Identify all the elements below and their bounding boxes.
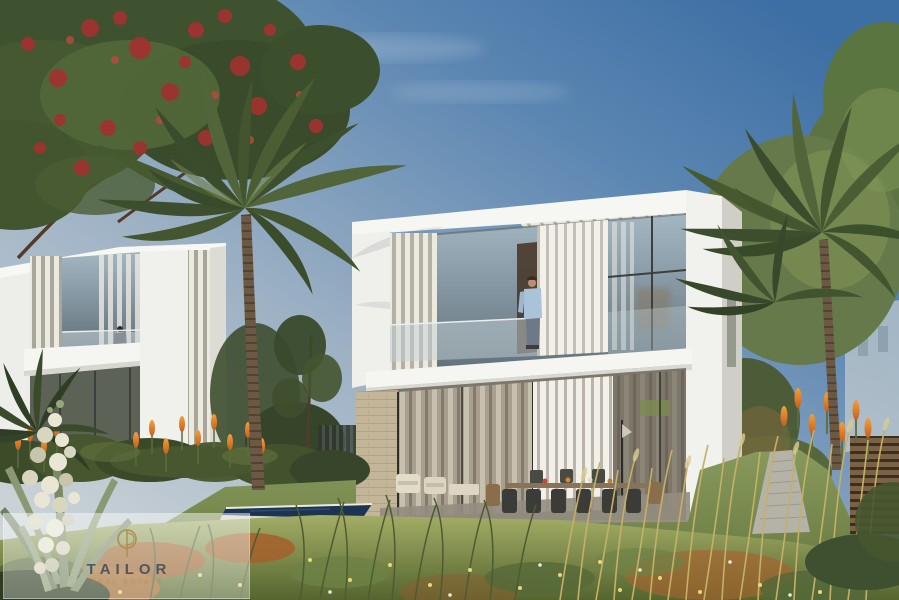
scene-canvas	[0, 0, 899, 600]
villa-rendering: TAILOR REAL ESTATE	[0, 0, 899, 600]
left-villa	[0, 243, 226, 470]
brand-name: TAILOR	[82, 561, 172, 578]
ground-louver-bank	[533, 376, 613, 512]
cirrus-cloud	[390, 82, 570, 102]
stone-clad-wall	[356, 390, 398, 520]
brand-tagline: REAL ESTATE	[88, 579, 164, 586]
chaise-longue	[449, 484, 479, 495]
watermark-panel: TAILOR REAL ESTATE	[3, 513, 250, 599]
main-villa	[349, 190, 742, 524]
brand-logo-icon	[110, 527, 144, 559]
upper-louver-bank-center	[537, 220, 608, 356]
left-villa-louvers	[30, 256, 62, 352]
